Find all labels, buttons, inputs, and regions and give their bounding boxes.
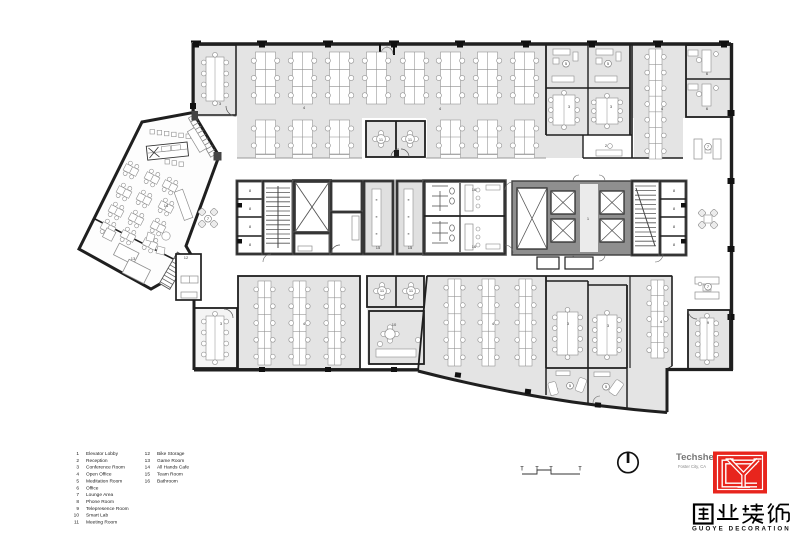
svg-text:2: 2: [76, 458, 79, 464]
svg-text:Conference Room: Conference Room: [86, 465, 125, 471]
svg-text:Elevator Lobby: Elevator Lobby: [86, 451, 119, 457]
svg-text:8: 8: [76, 499, 79, 505]
svg-text:Bathroom: Bathroom: [157, 478, 178, 484]
svg-text:16: 16: [145, 478, 151, 484]
svg-text:Phone Room: Phone Room: [86, 499, 114, 505]
svg-text:12: 12: [145, 451, 151, 457]
svg-text:13: 13: [145, 458, 151, 464]
svg-text:Foster City, CA: Foster City, CA: [678, 464, 706, 469]
svg-text:Smart Lab: Smart Lab: [86, 513, 108, 519]
svg-text:Office: Office: [86, 485, 99, 491]
svg-text:Lounge Area: Lounge Area: [86, 492, 114, 498]
svg-text:Meeting Room: Meeting Room: [86, 520, 117, 526]
svg-text:16: 16: [472, 187, 477, 192]
svg-text:Telepresence Room: Telepresence Room: [86, 506, 129, 512]
svg-text:Bike Storage: Bike Storage: [157, 451, 185, 457]
svg-text:15: 15: [408, 245, 413, 250]
svg-text:All Hands Cafe: All Hands Cafe: [157, 465, 189, 471]
svg-text:11: 11: [74, 520, 79, 526]
svg-text:1: 1: [76, 451, 79, 457]
svg-text:15: 15: [376, 245, 381, 250]
svg-text:Meditation Room: Meditation Room: [86, 478, 122, 484]
svg-text:7: 7: [76, 492, 79, 498]
svg-text:14: 14: [145, 465, 151, 471]
svg-text:14: 14: [164, 203, 169, 208]
svg-text:6: 6: [76, 485, 79, 491]
svg-text:15: 15: [145, 472, 151, 478]
svg-text:16: 16: [472, 244, 477, 249]
svg-text:Reception: Reception: [86, 458, 108, 464]
svg-text:10: 10: [74, 513, 80, 519]
svg-text:GUOYE DECORATION: GUOYE DECORATION: [692, 526, 791, 533]
svg-text:Game Room: Game Room: [157, 458, 184, 464]
svg-text:Open Office: Open Office: [86, 472, 112, 478]
svg-text:12: 12: [184, 255, 189, 260]
svg-text:13: 13: [131, 256, 136, 261]
svg-text:3: 3: [76, 465, 79, 471]
svg-text:Team Room: Team Room: [157, 472, 183, 478]
svg-text:4: 4: [76, 472, 79, 478]
svg-text:9: 9: [76, 506, 79, 512]
svg-text:5: 5: [76, 478, 79, 484]
svg-text:10: 10: [392, 322, 397, 327]
